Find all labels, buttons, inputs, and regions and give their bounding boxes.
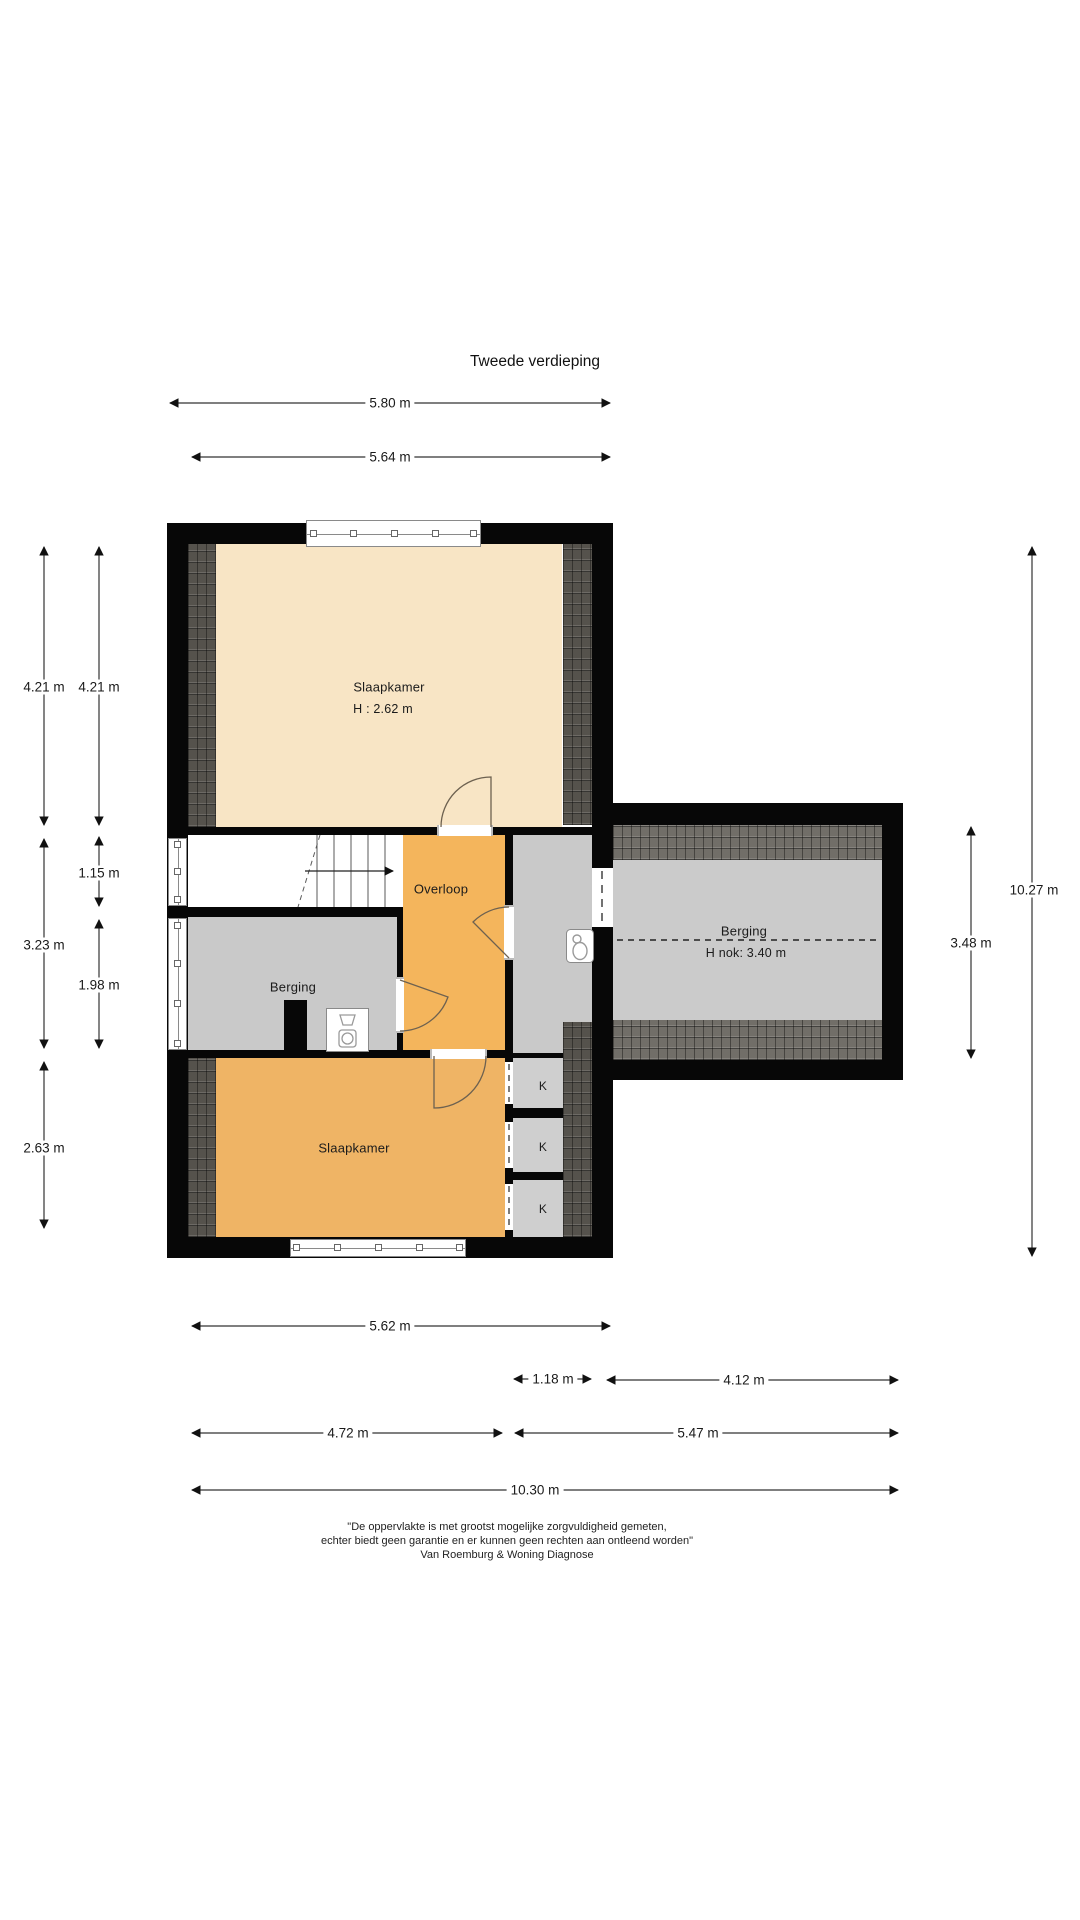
roof-slope-hatch-left-top xyxy=(188,544,216,827)
dim-label-right-10_27: 10.27 m xyxy=(1006,883,1063,898)
dim-label-top-5_64: 5.64 m xyxy=(365,450,414,465)
closet-door-k1 xyxy=(505,1062,513,1104)
closet-door-k2 xyxy=(505,1122,513,1168)
dim-label-left-4_21-b: 4.21 m xyxy=(74,680,123,695)
window-left-berging xyxy=(168,918,187,1050)
wall xyxy=(188,907,403,917)
room-label-berging-left: Berging xyxy=(270,980,316,995)
window-mullion xyxy=(416,1244,423,1251)
footer-company-name: Van Roemburg & Woning Diagnose xyxy=(420,1549,593,1561)
wall xyxy=(513,1108,563,1118)
room-label-overloop: Overloop xyxy=(414,882,468,897)
room-label-slaapkamer-bottom: Slaapkamer xyxy=(318,1141,389,1156)
window-mullion xyxy=(334,1244,341,1251)
footer-disclaimer-line2: echter biedt geen garantie en er kunnen … xyxy=(321,1535,693,1547)
corridor-lower xyxy=(513,1022,563,1053)
dim-label-bottom-4_72: 4.72 m xyxy=(323,1426,372,1441)
wall xyxy=(188,827,592,835)
dim-label-bottom-4_12: 4.12 m xyxy=(719,1373,768,1388)
dim-label-bottom-5_47: 5.47 m xyxy=(673,1426,722,1441)
dim-label-bottom-1_18: 1.18 m xyxy=(528,1372,577,1387)
footer-disclaimer-line1: "De oppervlakte is met grootst mogelijke… xyxy=(347,1521,666,1533)
window-mullion xyxy=(293,1244,300,1251)
dim-label-left-1_98: 1.98 m xyxy=(74,978,123,993)
window-mullion xyxy=(174,841,181,848)
floorplan-page: Tweede verdieping xyxy=(0,0,1080,1920)
closet-label-k3: K xyxy=(539,1202,547,1216)
door-opening-overloop-slaapkamer xyxy=(430,1049,487,1059)
room-overloop xyxy=(403,835,505,1050)
door-opening-berging-overloop xyxy=(396,977,404,1033)
closet-label-k1: K xyxy=(539,1079,547,1093)
wall xyxy=(613,803,903,825)
window-mullion xyxy=(174,960,181,967)
dim-label-left-2_63: 2.63 m xyxy=(19,1141,68,1156)
room-height-slaapkamer-top: H : 2.62 m xyxy=(353,702,413,716)
stairwell xyxy=(188,835,403,907)
window-mullion xyxy=(174,1000,181,1007)
window-mullion xyxy=(350,530,357,537)
wall xyxy=(613,1060,903,1080)
roof-slope-hatch-wing-top xyxy=(613,825,882,860)
page-title: Tweede verdieping xyxy=(470,353,600,371)
window-mullion xyxy=(310,530,317,537)
roof-slope-hatch-left-bottom xyxy=(188,1053,216,1237)
room-label-slaapkamer-top: Slaapkamer xyxy=(353,680,424,695)
window-mullion xyxy=(174,922,181,929)
window-mullion xyxy=(456,1244,463,1251)
door-opening-overloop-corridor xyxy=(504,905,514,960)
closet-door-k3 xyxy=(505,1184,513,1230)
toilet-icon xyxy=(566,929,594,968)
window-mullion xyxy=(174,896,181,903)
roof-slope-hatch-wing-bottom xyxy=(613,1020,882,1060)
dim-label-right-3_48: 3.48 m xyxy=(946,936,995,951)
roof-slope-hatch-right-top xyxy=(563,544,592,825)
window-frame-line xyxy=(178,919,179,1049)
window-mullion xyxy=(174,868,181,875)
wall xyxy=(513,1053,563,1058)
room-berging-right xyxy=(613,860,882,1020)
room-ridge-height-berging-right: H nok: 3.40 m xyxy=(706,946,786,960)
washing-machine-icon xyxy=(326,1008,369,1057)
dim-label-bottom-10_30: 10.30 m xyxy=(507,1483,564,1498)
door-opening-berging-right xyxy=(592,868,613,927)
dim-label-left-4_21-a: 4.21 m xyxy=(19,680,68,695)
closet-label-k2: K xyxy=(539,1140,547,1154)
dim-label-left-3_23: 3.23 m xyxy=(19,938,68,953)
window-mullion xyxy=(375,1244,382,1251)
window-mullion xyxy=(470,530,477,537)
wall xyxy=(513,1172,563,1180)
dim-label-left-1_15: 1.15 m xyxy=(74,866,123,881)
door-opening-slaapkamer-top xyxy=(437,825,493,836)
wall xyxy=(882,803,903,1080)
roof-slope-hatch-right-bottom xyxy=(563,1022,592,1237)
room-label-berging-right: Berging xyxy=(721,924,767,939)
window-mullion xyxy=(432,530,439,537)
chimney xyxy=(284,1000,307,1052)
window-mullion xyxy=(391,530,398,537)
dim-label-bottom-5_62: 5.62 m xyxy=(365,1319,414,1334)
window-mullion xyxy=(174,1040,181,1047)
dim-label-top-5_80: 5.80 m xyxy=(365,396,414,411)
